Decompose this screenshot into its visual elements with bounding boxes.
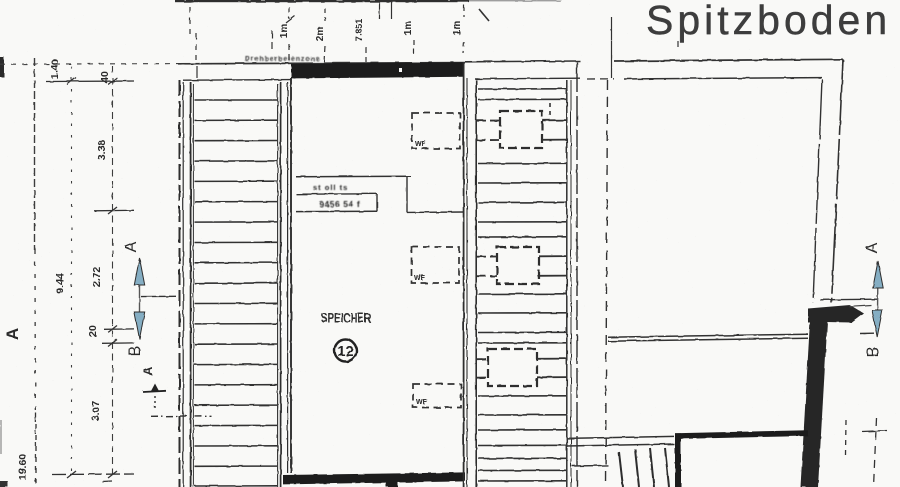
- svg-text:3.07: 3.07: [90, 401, 102, 422]
- svg-text:B: B: [865, 347, 882, 358]
- svg-text:12: 12: [337, 344, 353, 360]
- svg-text:Spitzboden: Spitzboden: [646, 0, 891, 43]
- svg-text:1.40: 1.40: [49, 59, 61, 80]
- svg-text:2m: 2m: [315, 27, 326, 42]
- svg-text:WF: WF: [415, 141, 427, 148]
- svg-text:1m: 1m: [403, 21, 414, 36]
- svg-text:19.60: 19.60: [17, 454, 29, 480]
- svg-text:SPEICHER: SPEICHER: [321, 311, 371, 326]
- svg-text:st oll ts: st oll ts: [313, 183, 348, 192]
- svg-text:1m: 1m: [452, 21, 463, 36]
- svg-text:40: 40: [99, 71, 111, 83]
- svg-text:A: A: [123, 241, 140, 252]
- svg-text:Drehberbeienzone: Drehberbeienzone: [245, 56, 320, 63]
- svg-text:1m: 1m: [279, 24, 290, 39]
- svg-text:WF: WF: [416, 399, 428, 406]
- svg-text:2.72: 2.72: [91, 267, 103, 288]
- svg-text:9.44: 9.44: [54, 273, 66, 294]
- svg-text:7.851: 7.851: [354, 19, 364, 42]
- svg-text:9456 54 f: 9456 54 f: [319, 199, 360, 209]
- svg-text:20: 20: [87, 325, 99, 337]
- svg-text:A: A: [3, 328, 22, 340]
- svg-text:3.38: 3.38: [96, 140, 108, 161]
- svg-text:A: A: [864, 242, 881, 253]
- svg-text:WF: WF: [414, 275, 426, 282]
- svg-text:A: A: [141, 366, 155, 375]
- svg-text:B: B: [127, 346, 144, 357]
